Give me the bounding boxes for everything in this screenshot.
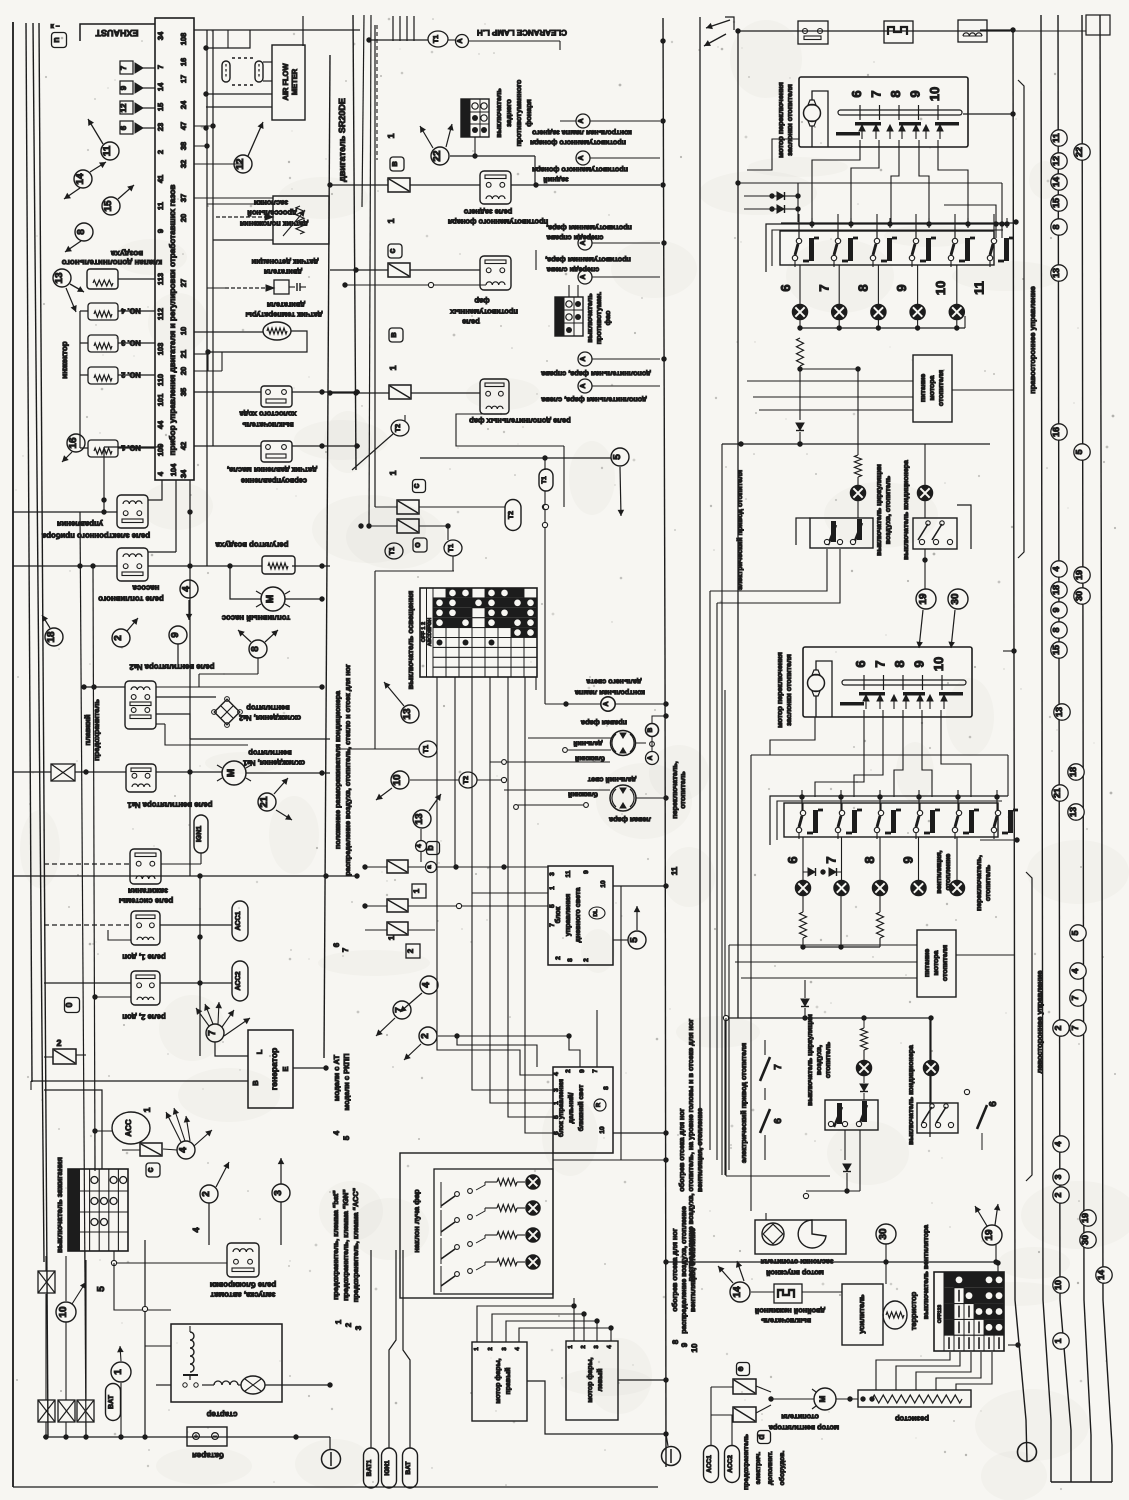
svg-text:8: 8	[892, 660, 907, 667]
svg-text:9: 9	[1051, 607, 1061, 612]
svg-text:8: 8	[855, 284, 870, 291]
svg-text:5: 5	[612, 454, 623, 460]
svg-text:2: 2	[565, 1069, 572, 1073]
svg-text:OFF ON: OFF ON	[463, 108, 469, 127]
svg-text:5: 5	[629, 937, 640, 943]
svg-text:20: 20	[179, 214, 188, 222]
svg-text:реле блокировки: реле блокировки	[210, 1280, 277, 1289]
svg-text:16: 16	[68, 437, 79, 449]
svg-text:A: A	[580, 356, 587, 361]
svg-text:1: 1	[387, 935, 396, 940]
svg-text:ACC1: ACC1	[706, 1455, 713, 1473]
svg-text:32: 32	[179, 160, 188, 168]
svg-text:противотуманная фара,: противотуманная фара,	[545, 255, 631, 264]
svg-text:5: 5	[1070, 930, 1080, 935]
svg-text:2: 2	[583, 958, 590, 962]
svg-text:12: 12	[235, 158, 246, 170]
svg-text:2: 2	[420, 1033, 431, 1039]
svg-text:34: 34	[156, 31, 165, 40]
svg-text:42: 42	[179, 442, 188, 450]
svg-text:1: 1	[113, 1369, 124, 1375]
svg-text:9: 9	[583, 870, 590, 874]
svg-text:инжектор: инжектор	[60, 341, 69, 378]
svg-text:11: 11	[156, 202, 165, 210]
svg-text:d: d	[756, 1434, 766, 1440]
svg-text:L: L	[255, 1049, 264, 1054]
svg-text:1: 1	[334, 1319, 343, 1324]
svg-text:8: 8	[603, 1086, 610, 1090]
svg-text:3: 3	[273, 1190, 284, 1196]
svg-text:7: 7	[1070, 1025, 1080, 1030]
svg-text:A: A	[647, 755, 654, 760]
svg-text:дополнит.: дополнит.	[767, 1451, 774, 1485]
svg-text:топливный насос: топливный насос	[221, 613, 290, 622]
svg-text:27: 27	[179, 279, 188, 287]
svg-text:5: 5	[342, 1135, 351, 1140]
svg-text:1: 1	[549, 886, 556, 890]
svg-text:22: 22	[432, 150, 443, 162]
svg-text:двигателя: двигателя	[267, 300, 305, 309]
svg-text:заслонки: заслонки	[254, 198, 289, 207]
svg-text:1: 1	[553, 1101, 560, 1105]
svg-text:выключатель циркуляции: выключатель циркуляции	[807, 1014, 814, 1106]
svg-text:контрольная лампа заднего: контрольная лампа заднего	[532, 128, 632, 137]
svg-text:охлаждения, №2: охлаждения, №2	[239, 713, 301, 722]
svg-text:b: b	[425, 845, 435, 851]
svg-text:13: 13	[1068, 807, 1078, 817]
svg-text:плавкий: плавкий	[83, 714, 92, 745]
svg-text:8: 8	[671, 1339, 680, 1344]
svg-text:14: 14	[1096, 1270, 1106, 1280]
svg-text:10: 10	[931, 657, 946, 671]
svg-text:13: 13	[402, 708, 413, 720]
svg-text:23: 23	[156, 123, 165, 131]
svg-text:14: 14	[1051, 177, 1061, 187]
svg-text:2: 2	[1053, 1192, 1063, 1197]
svg-text:44: 44	[156, 420, 165, 429]
svg-text:CLEARANCE LAMP L.H: CLEARANCE LAMP L.H	[477, 28, 567, 37]
svg-text:109: 109	[156, 444, 165, 457]
svg-text:реле вентилятора №2: реле вентилятора №2	[129, 662, 215, 671]
svg-text:BAT: BAT	[108, 1394, 115, 1409]
svg-text:переключатель,: переключатель,	[976, 855, 983, 911]
svg-text:усилитель: усилитель	[857, 1294, 866, 1334]
svg-text:9: 9	[901, 856, 916, 863]
svg-text:19: 19	[1074, 570, 1084, 580]
svg-text:4: 4	[1051, 566, 1061, 571]
svg-text:мотор фары,: мотор фары,	[494, 1358, 502, 1403]
svg-text:19: 19	[984, 1229, 995, 1241]
svg-text:a: a	[426, 865, 433, 869]
svg-text:предохранитель, клемма “ACC”: предохранитель, клемма “ACC”	[351, 1187, 360, 1302]
svg-text:110: 110	[156, 374, 165, 386]
svg-text:реле 1, доп: реле 1, доп	[122, 952, 166, 961]
svg-text:10: 10	[179, 327, 188, 335]
svg-text:датчик давления масла,: датчик давления масла,	[227, 465, 317, 474]
svg-text:выключатель циркуляции: выключатель циркуляции	[876, 464, 883, 556]
svg-text:заслонки отопителя: заслонки отопителя	[785, 84, 794, 156]
svg-text:T1: T1	[423, 745, 430, 753]
svg-text:41: 41	[156, 175, 165, 183]
svg-text:4: 4	[332, 1130, 341, 1135]
svg-text:4: 4	[1070, 968, 1080, 973]
svg-text:выключатель: выключатель	[585, 293, 594, 343]
svg-text:управления: управления	[563, 894, 572, 936]
svg-text:6: 6	[332, 942, 341, 947]
svg-text:13: 13	[1054, 707, 1064, 717]
svg-text:EXHAUST: EXHAUST	[95, 28, 139, 38]
svg-text:4: 4	[1053, 1141, 1063, 1146]
svg-text:1: 1	[386, 133, 396, 138]
svg-text:104: 104	[169, 463, 178, 476]
svg-text:отопление: отопление	[945, 854, 952, 891]
svg-text:c: c	[145, 1167, 155, 1172]
svg-text:8: 8	[888, 90, 903, 97]
svg-text:6: 6	[773, 1118, 784, 1124]
svg-text:дополнительная фара, слева: дополнительная фара, слева	[540, 395, 646, 404]
svg-text:стартер: стартер	[206, 1410, 237, 1419]
svg-text:7: 7	[394, 1007, 405, 1013]
svg-text:8: 8	[76, 229, 87, 235]
svg-text:дроссельной: дроссельной	[247, 208, 297, 217]
svg-text:реле электронного прибора: реле электронного прибора	[41, 531, 150, 540]
svg-text:мотор вентилятора: мотор вентилятора	[768, 1423, 839, 1432]
svg-text:ближний: ближний	[568, 791, 598, 799]
svg-text:12: 12	[119, 103, 128, 112]
svg-text:6: 6	[553, 1131, 560, 1135]
svg-text:9: 9	[680, 1342, 689, 1347]
svg-text:10: 10	[392, 774, 403, 786]
svg-text:ABCDEFGH: ABCDEFGH	[427, 617, 433, 646]
svg-text:отопитель: отопитель	[825, 1041, 832, 1078]
svg-text:выключатель кондиционера: выключатель кондиционера	[908, 1045, 915, 1145]
svg-text:12: 12	[1051, 156, 1061, 166]
svg-text:0: 0	[64, 1002, 74, 1007]
svg-text:ACC2: ACC2	[727, 1455, 734, 1473]
svg-text:электрический привод отопителя: электрический привод отопителя	[739, 1043, 748, 1163]
svg-text:реле 2, доп: реле 2, доп	[122, 1012, 166, 1021]
svg-text:T2: T2	[395, 424, 402, 432]
svg-text:30: 30	[1074, 591, 1084, 601]
svg-text:питание: питание	[920, 374, 927, 402]
svg-text:правая фара: правая фара	[580, 718, 627, 727]
svg-text:18: 18	[1051, 585, 1061, 595]
svg-text:21: 21	[259, 796, 270, 808]
svg-text:BAT: BAT	[405, 1462, 412, 1475]
svg-text:13: 13	[54, 272, 65, 284]
svg-text:мотор впускной: мотор впускной	[766, 1268, 824, 1277]
svg-text:112: 112	[156, 308, 165, 320]
svg-text:9: 9	[908, 90, 923, 97]
svg-text:электрический привод отопителя: электрический привод отопителя	[735, 470, 744, 590]
svg-text:предохранитель: предохранитель	[743, 1434, 750, 1490]
svg-text:регулятор воздуха: регулятор воздуха	[215, 540, 289, 549]
svg-text:2: 2	[56, 1038, 61, 1048]
svg-text:1: 1	[1053, 1338, 1063, 1343]
svg-text:T1: T1	[389, 547, 396, 555]
svg-text:дополнительная фара, справа: дополнительная фара, справа	[540, 369, 651, 378]
svg-text:108: 108	[179, 33, 188, 46]
svg-text:22: 22	[1074, 147, 1084, 157]
svg-text:реле вентилятора №1: реле вентилятора №1	[127, 800, 213, 809]
svg-text:ACC1: ACC1	[235, 911, 242, 930]
svg-text:7: 7	[341, 947, 350, 952]
svg-text:генератор: генератор	[269, 1048, 279, 1090]
svg-text:8: 8	[250, 646, 261, 652]
svg-text:обогрев отсека для ног: обогрев отсека для ног	[677, 1108, 686, 1191]
svg-text:блок управления: блок управления	[558, 1079, 565, 1137]
svg-text:мотор фары,: мотор фары,	[586, 1357, 594, 1402]
svg-text:T1: T1	[448, 544, 455, 552]
svg-text:двигатель SR20DE: двигатель SR20DE	[337, 98, 347, 182]
svg-text:выключатель: выключатель	[242, 420, 294, 429]
svg-text:левый: левый	[596, 1369, 604, 1392]
svg-text:38: 38	[179, 142, 188, 150]
svg-text:7: 7	[549, 923, 556, 927]
svg-text:R: R	[595, 1102, 602, 1107]
svg-text:выключатель кондиционера: выключатель кондиционера	[903, 460, 910, 560]
svg-text:3: 3	[553, 1088, 560, 1092]
svg-text:NO. 3: NO. 3	[121, 338, 141, 347]
svg-text:мотор переключения: мотор переключения	[776, 82, 785, 158]
svg-text:IGN1: IGN1	[384, 1460, 391, 1476]
svg-text:2: 2	[113, 635, 124, 641]
svg-text:реле топливного: реле топливного	[98, 594, 164, 603]
svg-text:B: B	[647, 727, 654, 732]
svg-text:9: 9	[912, 660, 927, 667]
svg-text:NO. 1: NO. 1	[121, 443, 141, 452]
svg-text:5: 5	[96, 1286, 107, 1292]
svg-text:3: 3	[1053, 1174, 1063, 1179]
svg-text:воздуха, отопитель: воздуха, отопитель	[885, 475, 892, 544]
svg-text:вентилятор: вентилятор	[248, 748, 292, 757]
svg-text:положение размораживателя конд: положение размораживателя кондиционера	[333, 690, 342, 849]
svg-text:охлаждения, №1: охлаждения, №1	[243, 758, 305, 767]
svg-text:2: 2	[555, 956, 562, 960]
svg-text:M: M	[226, 769, 237, 777]
svg-text:2: 2	[344, 1322, 353, 1327]
svg-text:A: A	[457, 38, 464, 43]
svg-text:11: 11	[1051, 133, 1061, 143]
svg-text:модели с РКПП: модели с РКПП	[342, 1054, 351, 1111]
svg-text:ACC: ACC	[124, 1119, 133, 1137]
svg-text:противотуманного: противотуманного	[514, 79, 523, 146]
svg-text:113: 113	[156, 273, 165, 285]
svg-text:реле заднего: реле заднего	[463, 207, 512, 216]
svg-text:103: 103	[156, 343, 165, 356]
svg-text:контрольная лампа: контрольная лампа	[574, 688, 645, 697]
svg-text:левая фара: левая фара	[608, 815, 651, 824]
svg-text:4: 4	[416, 844, 423, 848]
svg-text:10: 10	[58, 1306, 69, 1318]
svg-text:8: 8	[1051, 224, 1061, 229]
svg-text:T2: T2	[463, 776, 470, 784]
svg-text:6: 6	[778, 284, 793, 291]
svg-text:реле: реле	[462, 317, 480, 326]
svg-text:противотуманная фара,: противотуманная фара,	[546, 223, 632, 232]
svg-text:заслонки отопителя: заслонки отопителя	[784, 654, 793, 726]
svg-text:T1: T1	[541, 476, 548, 484]
svg-text:выключатель: выключатель	[760, 1316, 811, 1325]
svg-text:предохранитель, клемма “bat”: предохранитель, клемма “bat”	[331, 1190, 340, 1300]
svg-text:отопитель: отопитель	[678, 771, 687, 809]
svg-text:вентилятор: вентилятор	[246, 703, 290, 712]
svg-text:7: 7	[119, 65, 128, 70]
svg-text:15: 15	[103, 200, 114, 212]
svg-text:c: c	[411, 483, 421, 488]
svg-text:клапан дополнительного: клапан дополнительного	[62, 258, 163, 267]
svg-text:7: 7	[773, 1064, 784, 1070]
svg-text:T2: T2	[508, 511, 515, 519]
svg-text:4: 4	[178, 1147, 189, 1153]
svg-text:задний: задний	[543, 175, 568, 184]
svg-text:зажигания: зажигания	[128, 886, 168, 895]
svg-text:противотуманного фонаря: противотуманного фонаря	[448, 217, 548, 226]
svg-text:IGN1: IGN1	[196, 826, 203, 842]
svg-text:дальний/: дальний/	[567, 1092, 575, 1123]
svg-text:выключатель зажигания: выключатель зажигания	[55, 1157, 64, 1253]
svg-text:7: 7	[1070, 995, 1080, 1000]
svg-text:10: 10	[1053, 1280, 1063, 1290]
svg-text:насоса: насоса	[132, 583, 159, 592]
svg-text:дальний: дальний	[573, 740, 602, 748]
svg-text:3: 3	[354, 1325, 363, 1330]
svg-text:правостороннее управление: правостороннее управление	[1028, 286, 1037, 393]
svg-text:2: 2	[156, 150, 165, 154]
svg-text:10: 10	[600, 880, 607, 888]
svg-text:10: 10	[599, 1126, 606, 1134]
svg-text:отопителя: отопителя	[938, 370, 945, 406]
svg-text:11: 11	[565, 870, 572, 877]
svg-text:7: 7	[156, 65, 165, 69]
svg-text:c: c	[387, 248, 397, 253]
svg-text:оборудов.: оборудов.	[779, 1451, 786, 1486]
svg-text:21: 21	[179, 350, 188, 358]
svg-text:противотуманного фонаря: противотуманного фонаря	[530, 138, 626, 147]
svg-text:предохранитель: предохранитель	[92, 699, 101, 761]
svg-text:6: 6	[785, 856, 800, 863]
svg-text:5: 5	[549, 904, 556, 908]
svg-text:1: 1	[388, 470, 398, 475]
svg-text:4: 4	[553, 1072, 560, 1076]
svg-text:батарея: батарея	[192, 1451, 224, 1460]
svg-text:18: 18	[1068, 767, 1078, 777]
svg-text:в: в	[389, 161, 399, 167]
svg-text:34: 34	[179, 469, 188, 478]
svg-text:7: 7	[817, 284, 832, 291]
svg-text:реле дополнительных фар: реле дополнительных фар	[469, 416, 571, 425]
svg-text:6: 6	[853, 660, 868, 667]
svg-text:11: 11	[670, 866, 679, 875]
svg-text:левостороннее управление: левостороннее управление	[1035, 971, 1044, 1074]
svg-text:4: 4	[421, 982, 432, 988]
svg-text:47: 47	[179, 122, 188, 130]
svg-text:двойной нажимной: двойной нажимной	[755, 1306, 825, 1315]
svg-text:9: 9	[156, 229, 165, 233]
svg-text:20: 20	[179, 367, 188, 375]
svg-text:ACC2: ACC2	[235, 971, 242, 990]
svg-text:фонаря: фонаря	[524, 99, 533, 126]
svg-text:фар: фар	[474, 296, 490, 305]
svg-text:к –: к –	[50, 23, 59, 30]
svg-text:13: 13	[414, 813, 425, 825]
svg-text:7: 7	[869, 90, 884, 97]
svg-text:E: E	[281, 1066, 290, 1071]
svg-text:противотуманных: противотуманных	[449, 307, 518, 316]
svg-text:обогрев отсека для ног: обогрев отсека для ног	[670, 1228, 679, 1311]
svg-text:NO. 4: NO. 4	[120, 306, 140, 315]
svg-text:ближний: ближний	[575, 755, 605, 763]
svg-text:9: 9	[579, 1069, 586, 1073]
svg-text:противотуманного фонаря: противотуманного фонаря	[532, 165, 628, 174]
svg-text:3: 3	[549, 872, 556, 876]
svg-text:NO. 2: NO. 2	[121, 370, 141, 379]
svg-text:10: 10	[927, 87, 942, 101]
svg-text:датчик температуры: датчик температуры	[245, 310, 322, 319]
svg-text:1: 1	[142, 1107, 152, 1112]
svg-text:OFF123: OFF123	[937, 1305, 943, 1324]
svg-text:B: B	[251, 1080, 260, 1086]
svg-text:101: 101	[156, 394, 165, 407]
svg-text:15: 15	[156, 103, 165, 111]
svg-text:запуска, автомат: запуска, автомат	[210, 1290, 275, 1299]
svg-text:в: в	[388, 332, 398, 338]
svg-text:7: 7	[592, 1069, 599, 1073]
svg-text:M: M	[818, 1395, 827, 1402]
svg-text:OFF 1 2: OFF 1 2	[557, 307, 563, 326]
svg-text:мотор переключения: мотор переключения	[775, 652, 784, 728]
svg-text:9: 9	[119, 85, 128, 90]
svg-text:наклон луча фар: наклон луча фар	[412, 1189, 421, 1253]
svg-text:блок: блок	[553, 906, 562, 923]
svg-text:21: 21	[1052, 788, 1062, 798]
svg-text:9: 9	[170, 632, 181, 638]
svg-text:BAT1: BAT1	[366, 1459, 373, 1476]
svg-text:выключатель освещения: выключатель освещения	[406, 591, 415, 690]
svg-text:1: 1	[388, 365, 398, 370]
svg-text:18: 18	[46, 631, 57, 643]
svg-text:13: 13	[1051, 268, 1061, 278]
svg-text:10: 10	[933, 281, 948, 295]
svg-text:14: 14	[75, 173, 86, 185]
svg-text:30: 30	[950, 593, 961, 605]
svg-text:2: 2	[1053, 1025, 1063, 1030]
svg-text:2: 2	[201, 1191, 212, 1197]
svg-text:прибор управления двигателя и: прибор управления двигателя и регулировк…	[168, 185, 177, 456]
svg-text:мотора: мотора	[933, 950, 940, 975]
svg-text:10: 10	[690, 1343, 699, 1352]
svg-text:4: 4	[191, 1227, 201, 1232]
svg-text:1: 1	[412, 888, 421, 893]
svg-text:электрич.: электрич.	[755, 1452, 762, 1485]
svg-text:питание: питание	[924, 949, 931, 977]
svg-text:16: 16	[1051, 427, 1061, 437]
svg-text:A: A	[578, 118, 585, 123]
svg-text:n: n	[51, 37, 61, 43]
svg-text:6: 6	[849, 90, 864, 97]
svg-text:заднего: заднего	[504, 99, 513, 127]
svg-text:противотуман.: противотуман.	[594, 292, 603, 345]
svg-text:сервоуправление: сервоуправление	[241, 476, 307, 485]
svg-text:o: o	[412, 542, 422, 548]
svg-text:6: 6	[988, 1101, 999, 1107]
svg-text:отопителя: отопителя	[942, 945, 949, 981]
svg-text:резистор: резистор	[895, 1414, 929, 1423]
svg-text:9: 9	[894, 284, 909, 291]
svg-text:BAT AC IG ST: BAT AC IG ST	[71, 1191, 77, 1228]
svg-text:15: 15	[1051, 645, 1061, 655]
svg-text:A: A	[578, 155, 585, 160]
